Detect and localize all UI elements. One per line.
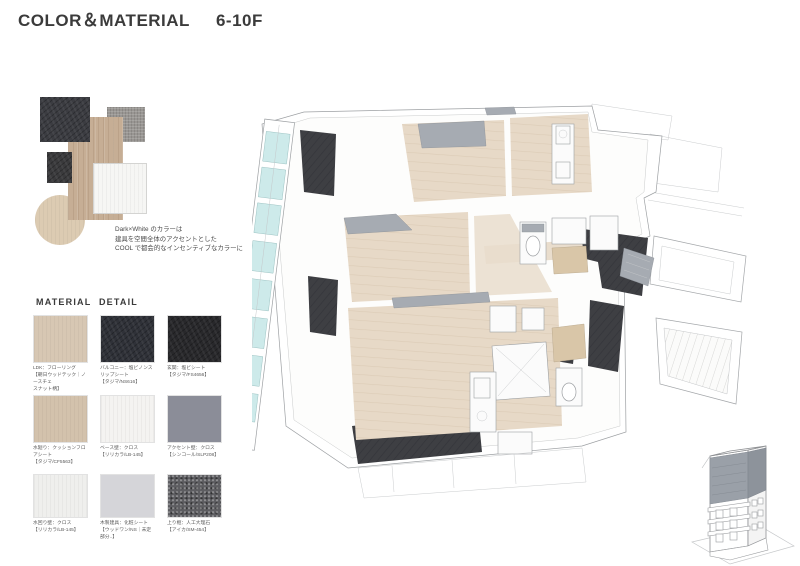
material-label: ベース壁：クロス【リリカラ/LB-145】 — [100, 446, 155, 460]
material-swatch — [167, 395, 222, 443]
material-swatch — [33, 474, 88, 518]
material-item-wet-area-floor: 水廻り：クッションフロアシート【タジマ/CF5563】 — [33, 395, 88, 474]
concept-line: Dark×White のカラーは — [115, 225, 265, 235]
material-label: 上り框：人工大理石【アイカ/SM-454】 — [167, 521, 222, 535]
material-label: バルコニー：塩ビノンスリップシート【タジマ/NS616】 — [100, 366, 155, 387]
material-item-entry-step: 上り框：人工大理石【アイカ/SM-454】 — [167, 474, 222, 550]
dark-stone-swatch — [47, 152, 72, 183]
material-detail-grid: LDK：フローリング【朝日ウッドテック｜ノースチェスナット柄】 バルコニー：塩ビ… — [33, 315, 222, 550]
material-swatch — [100, 474, 155, 518]
material-swatch — [100, 315, 155, 363]
material-swatch — [100, 395, 155, 443]
balcony-floor-dark-mid-left — [308, 276, 338, 336]
page-title: COLOR＆MATERIAL6-10F — [18, 6, 263, 31]
material-label: 玄関：塩ビシート【タジマ/FS4656】 — [167, 366, 222, 380]
color-material-page: COLOR＆MATERIAL6-10F Dark×White のカラーは 建具を… — [0, 0, 800, 566]
page-title-text: COLOR＆MATERIAL — [18, 11, 190, 30]
material-label: 水廻り：クッションフロアシート【タジマ/CF5563】 — [33, 446, 88, 467]
core-dark-lower — [588, 300, 624, 372]
material-label: 木製建具：化粧シート【ウッドワン/NS｜未定部分..】 — [100, 521, 155, 542]
material-swatch — [167, 474, 222, 518]
floor-plan-rendering — [252, 96, 748, 500]
material-item-accent-wall: アクセント壁：クロス【シンコール/SLP208】 — [167, 395, 222, 474]
white-panel-swatch — [93, 163, 147, 214]
floor-plan-svg — [252, 96, 748, 500]
building-location-rendering — [688, 426, 798, 566]
material-item-base-wall: ベース壁：クロス【リリカラ/LB-145】 — [100, 395, 155, 474]
material-label: アクセント壁：クロス【シンコール/SLP208】 — [167, 446, 222, 460]
material-label: LDK：フローリング【朝日ウッドテック｜ノースチェスナット柄】 — [33, 366, 88, 394]
building-svg — [688, 426, 798, 566]
dark-fabric-swatch — [40, 97, 90, 142]
material-label: 水回り壁：クロス【リリカラ/LB-145】 — [33, 521, 88, 535]
material-swatch — [33, 395, 88, 443]
material-swatch — [33, 315, 88, 363]
material-item-entrance-sheet: 玄関：塩ビシート【タジマ/FS4656】 — [167, 315, 222, 395]
balcony-floor-dark-top-left — [300, 130, 336, 196]
material-item-interior-doors: 木製建具：化粧シート【ウッドワン/NS｜未定部分..】 — [100, 474, 155, 550]
material-item-wet-wall: 水回り壁：クロス【リリカラ/LB-145】 — [33, 474, 88, 550]
material-swatch — [167, 315, 222, 363]
material-item-ldk-flooring: LDK：フローリング【朝日ウッドテック｜ノースチェスナット柄】 — [33, 315, 88, 395]
floor-range-label: 6-10F — [216, 11, 263, 30]
material-item-balcony-sheet: バルコニー：塩ビノンスリップシート【タジマ/NS616】 — [100, 315, 155, 395]
ldk-floor-top — [510, 114, 592, 196]
concept-line: 建具を空間全体のアクセントとした — [115, 235, 265, 245]
concept-description: Dark×White のカラーは 建具を空間全体のアクセントとした COOL で… — [115, 225, 265, 254]
material-detail-heading: MATERIAL DETAIL — [36, 297, 138, 307]
concept-line: COOL で都会的なインセンティブなカラーに — [115, 244, 265, 254]
